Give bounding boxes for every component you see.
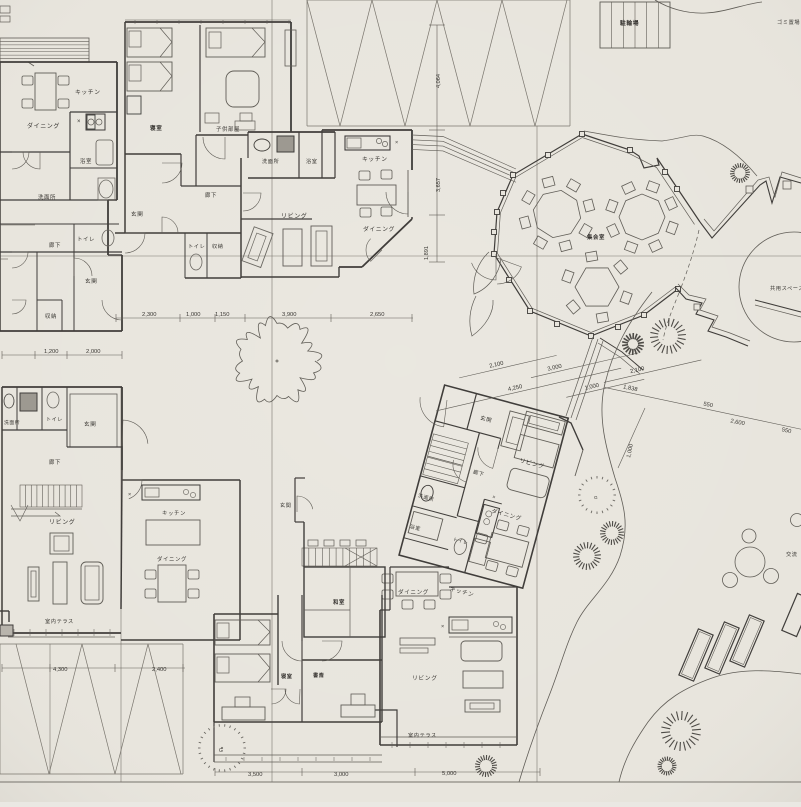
svg-text:玄関: 玄関	[131, 210, 143, 218]
svg-text:ゴミ置場: ゴミ置場	[777, 18, 800, 26]
svg-text:ダイニング: ダイニング	[27, 122, 60, 130]
svg-text:1,891: 1,891	[424, 246, 430, 260]
svg-text:寝室: 寝室	[280, 672, 293, 680]
svg-text:2,300: 2,300	[142, 312, 157, 318]
svg-text:室内テラス: 室内テラス	[45, 617, 74, 625]
svg-text:キッチン: キッチン	[75, 89, 101, 96]
svg-text:玄関: 玄関	[85, 277, 97, 285]
svg-text:×: ×	[441, 624, 445, 630]
svg-text:浴室: 浴室	[306, 157, 318, 165]
svg-text:1,200: 1,200	[44, 349, 59, 355]
svg-text:×: ×	[77, 119, 81, 125]
svg-text:書斎: 書斎	[313, 671, 325, 679]
svg-text:×: ×	[395, 140, 399, 146]
svg-text:3,657: 3,657	[436, 178, 442, 192]
svg-text:4,064: 4,064	[436, 74, 442, 88]
svg-text:4,300: 4,300	[53, 667, 68, 673]
svg-text:共用スペース: 共用スペース	[770, 284, 801, 292]
svg-text:2,400: 2,400	[152, 667, 167, 673]
svg-text:和室: 和室	[332, 598, 345, 606]
svg-text:トイレ: トイレ	[46, 417, 63, 423]
svg-text:洗面所: 洗面所	[4, 419, 20, 426]
svg-text:ダイニング: ダイニング	[398, 588, 429, 596]
svg-text:リビング: リビング	[281, 212, 307, 220]
svg-text:トイレ: トイレ	[77, 237, 95, 243]
svg-text:2,000: 2,000	[86, 349, 101, 355]
svg-text:玄関: 玄関	[84, 420, 96, 428]
svg-text:ダイニング: ダイニング	[363, 225, 395, 233]
svg-text:2,650: 2,650	[370, 312, 385, 318]
svg-text:廊下: 廊下	[49, 458, 61, 466]
svg-text:収納: 収納	[45, 312, 57, 320]
svg-text:廊下: 廊下	[205, 191, 217, 199]
svg-text:室内テラス: 室内テラス	[408, 731, 437, 739]
svg-text:1,150: 1,150	[215, 312, 230, 318]
svg-text:リビング: リビング	[412, 674, 438, 682]
svg-text:G: G	[594, 495, 598, 500]
svg-text:G: G	[219, 748, 224, 754]
svg-text:×: ×	[128, 492, 132, 498]
svg-text:1,000: 1,000	[186, 312, 201, 318]
svg-text:ダイニング: ダイニング	[157, 555, 187, 563]
svg-text:玄関: 玄関	[280, 501, 292, 509]
svg-text:寝室: 寝室	[149, 124, 162, 132]
svg-text:3,900: 3,900	[282, 312, 297, 318]
svg-text:5,000: 5,000	[442, 771, 457, 777]
svg-text:廊下: 廊下	[49, 241, 61, 249]
svg-text:浴室: 浴室	[80, 157, 92, 165]
svg-text:駐輪場: 駐輪場	[620, 19, 639, 27]
svg-text:収納: 収納	[212, 242, 224, 250]
svg-text:洗面所: 洗面所	[262, 157, 279, 165]
svg-text:集会室: 集会室	[586, 233, 605, 241]
svg-text:トイレ: トイレ	[188, 244, 205, 250]
svg-text:3,000: 3,000	[334, 772, 349, 778]
svg-text:キッチン: キッチン	[162, 510, 186, 517]
svg-text:3,500: 3,500	[248, 772, 263, 778]
svg-text:交流: 交流	[786, 550, 798, 558]
svg-text:子供部屋: 子供部屋	[216, 125, 240, 133]
svg-text:リビング: リビング	[49, 518, 75, 526]
svg-text:キッチン: キッチン	[362, 156, 388, 163]
svg-text:洗面所: 洗面所	[38, 193, 56, 201]
